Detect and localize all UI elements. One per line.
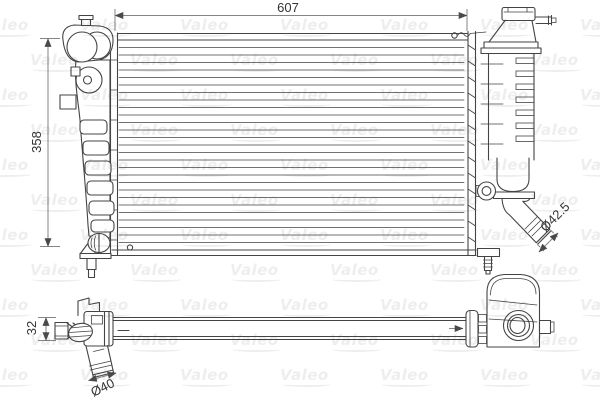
mount-hole bbox=[127, 245, 132, 250]
left-elbow-fitting bbox=[55, 298, 114, 378]
radiator-technical-drawing: 607 358 Ø42.5 bbox=[0, 0, 600, 400]
front-view: 607 358 Ø42.5 bbox=[29, 0, 573, 278]
bottom-stub bbox=[87, 259, 96, 278]
dim-width-label: 607 bbox=[277, 0, 299, 15]
mounting-stud bbox=[478, 249, 500, 275]
tank-rib-fins bbox=[516, 58, 534, 142]
left-tank bbox=[60, 16, 114, 278]
bottom-pipe bbox=[86, 346, 114, 378]
bottom-view: 32 Ø40 bbox=[24, 275, 554, 400]
drawing-canvas: 607 358 Ø42.5 bbox=[0, 0, 600, 400]
hose-clamp bbox=[476, 182, 496, 200]
filler-cap bbox=[502, 8, 535, 21]
mount-bracket bbox=[60, 95, 76, 109]
radiator-core bbox=[111, 32, 487, 256]
dim-height-label: 358 bbox=[29, 131, 44, 153]
drain-screw bbox=[88, 234, 110, 253]
vent-fitting-icon bbox=[452, 32, 486, 38]
dimension-width: 607 bbox=[115, 0, 467, 31]
dimension-height: 358 bbox=[29, 39, 60, 247]
top-stub bbox=[79, 16, 93, 26]
dim-outlet-label: Ø42.5 bbox=[537, 199, 573, 235]
dimension-pipe-diameter: Ø40 bbox=[88, 373, 117, 400]
overflow-pipe bbox=[536, 16, 556, 26]
lower-pocket bbox=[497, 158, 529, 192]
side-stub bbox=[540, 321, 555, 334]
bottom-tube bbox=[113, 318, 466, 340]
dimension-outlet-diameter: Ø42.5 bbox=[537, 199, 573, 252]
expansion-tank bbox=[476, 8, 556, 275]
dimension-depth: 32 bbox=[24, 318, 56, 341]
dim-depth-label: 32 bbox=[24, 321, 39, 335]
